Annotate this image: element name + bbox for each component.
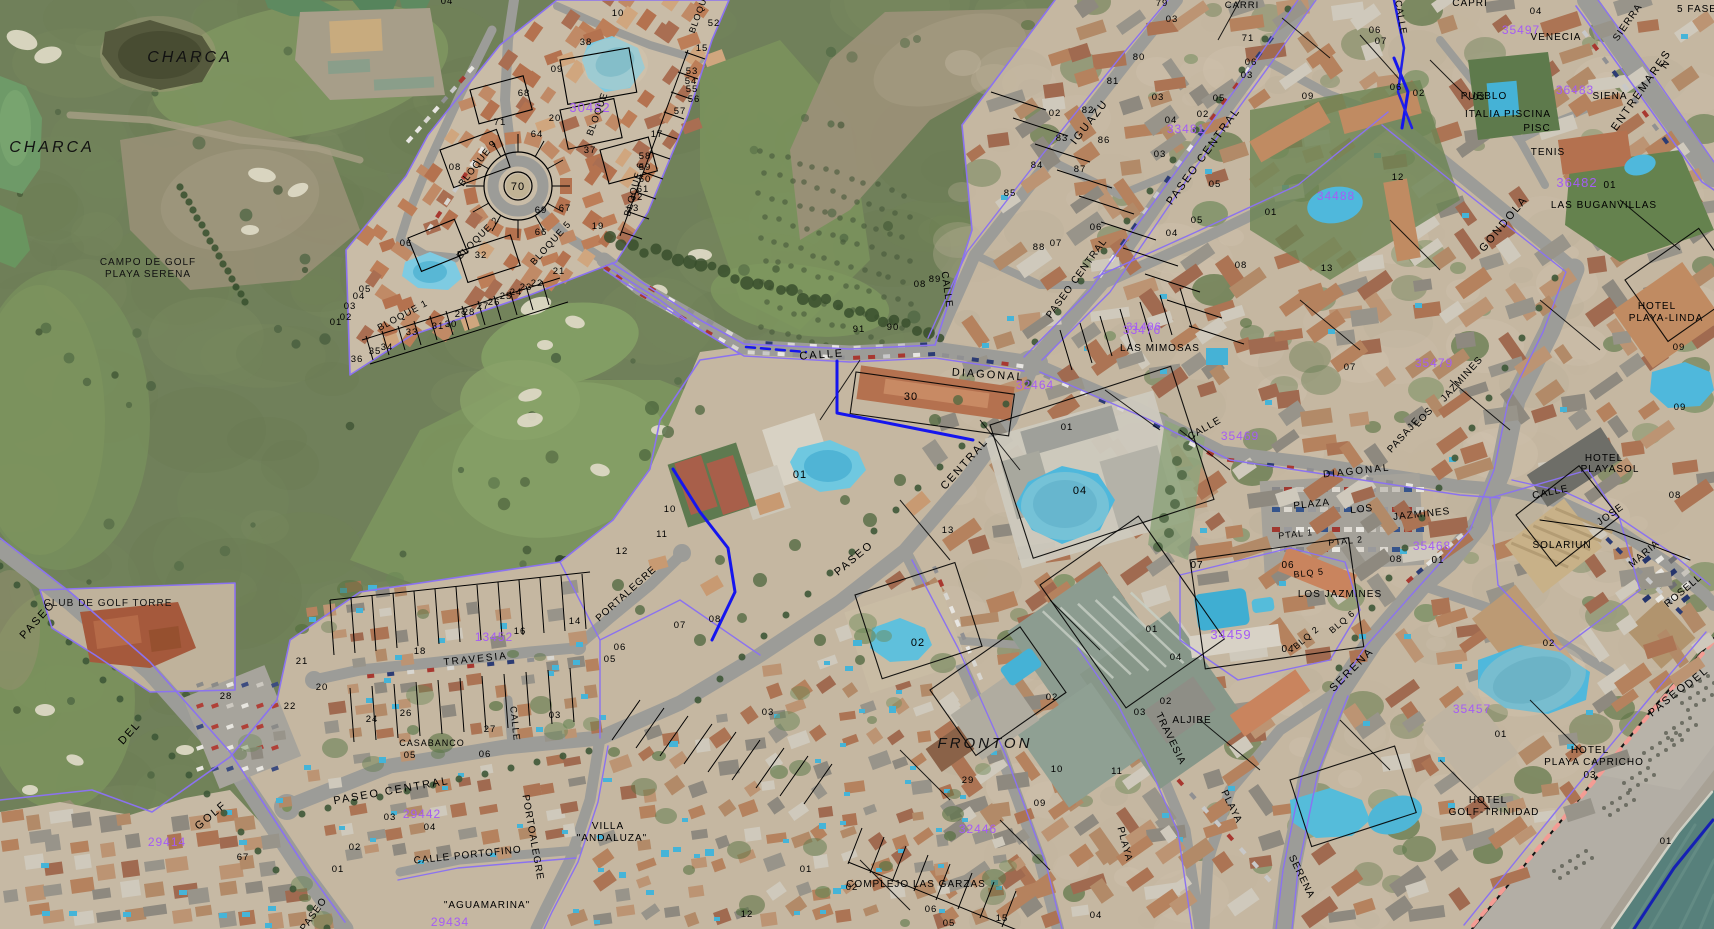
svg-text:GOLF-TRINIDAD: GOLF-TRINIDAD (1449, 807, 1540, 818)
svg-text:03: 03 (762, 707, 775, 718)
svg-text:04: 04 (441, 0, 454, 7)
svg-text:28: 28 (463, 307, 476, 318)
svg-text:68: 68 (518, 88, 531, 99)
svg-text:88: 88 (1033, 242, 1046, 253)
svg-text:06: 06 (1090, 222, 1103, 233)
svg-text:05: 05 (404, 750, 417, 761)
svg-text:01: 01 (1495, 729, 1508, 740)
svg-text:21: 21 (553, 266, 566, 277)
svg-text:HOTEL: HOTEL (1638, 301, 1676, 312)
svg-text:36483: 36483 (1556, 83, 1594, 97)
svg-text:31406: 31406 (1126, 321, 1162, 333)
svg-text:ALJIBE: ALJIBE (1172, 715, 1211, 726)
svg-text:15: 15 (996, 913, 1009, 924)
svg-text:14: 14 (569, 616, 582, 627)
svg-text:18: 18 (414, 646, 427, 657)
svg-text:17: 17 (651, 129, 664, 140)
svg-text:30: 30 (904, 391, 918, 403)
svg-text:"ANDALUZA": "ANDALUZA" (577, 833, 647, 844)
svg-text:10: 10 (612, 8, 625, 19)
svg-text:05: 05 (1209, 179, 1222, 190)
svg-text:10: 10 (664, 504, 677, 515)
svg-text:06: 06 (1245, 57, 1258, 68)
svg-text:CAPRI: CAPRI (1452, 0, 1488, 9)
svg-text:79: 79 (1156, 0, 1169, 9)
svg-text:02: 02 (1543, 638, 1556, 649)
svg-text:04: 04 (1166, 228, 1179, 239)
svg-text:LAS BUGANVILLAS: LAS BUGANVILLAS (1551, 200, 1657, 211)
svg-text:35479: 35479 (1415, 356, 1453, 370)
svg-text:08: 08 (1390, 554, 1403, 565)
svg-text:5 FASE: 5 FASE (1677, 4, 1714, 15)
svg-text:09: 09 (551, 64, 564, 75)
svg-text:81: 81 (1107, 76, 1120, 87)
svg-text:13: 13 (1321, 263, 1334, 274)
svg-text:21: 21 (296, 656, 309, 667)
svg-text:22: 22 (284, 701, 297, 712)
svg-text:05: 05 (943, 918, 956, 929)
svg-text:01: 01 (1660, 836, 1673, 847)
svg-text:89: 89 (929, 274, 942, 285)
svg-text:29442: 29442 (403, 807, 441, 821)
svg-text:03: 03 (344, 301, 357, 312)
svg-text:07: 07 (1190, 560, 1203, 571)
svg-text:06: 06 (400, 238, 413, 249)
svg-text:HOTEL: HOTEL (1585, 453, 1623, 464)
svg-text:02: 02 (349, 842, 362, 853)
svg-text:03: 03 (549, 710, 562, 721)
svg-text:"AGUAMARINA": "AGUAMARINA" (444, 900, 530, 911)
svg-text:15: 15 (696, 43, 709, 54)
svg-text:67: 67 (559, 203, 572, 214)
svg-text:07: 07 (1050, 238, 1063, 249)
svg-text:06: 06 (479, 749, 492, 760)
svg-text:35468: 35468 (1413, 539, 1451, 553)
svg-text:07: 07 (1344, 362, 1357, 373)
svg-text:34459: 34459 (1210, 627, 1251, 642)
svg-text:85: 85 (1004, 188, 1017, 199)
svg-text:11: 11 (1111, 766, 1123, 777)
svg-text:04: 04 (1090, 910, 1103, 921)
svg-text:02: 02 (1413, 88, 1426, 99)
svg-text:11: 11 (656, 529, 668, 540)
svg-text:09: 09 (1674, 402, 1687, 413)
svg-text:83: 83 (1056, 133, 1069, 144)
svg-text:56: 56 (688, 94, 701, 105)
svg-text:33: 33 (406, 327, 419, 338)
svg-text:08: 08 (1669, 490, 1682, 501)
svg-text:03: 03 (1166, 14, 1179, 25)
svg-text:31: 31 (432, 321, 445, 332)
svg-text:30: 30 (445, 319, 458, 330)
svg-text:35457: 35457 (1453, 702, 1491, 716)
svg-text:32464: 32464 (1016, 378, 1054, 392)
svg-text:05: 05 (604, 654, 617, 665)
svg-text:29414: 29414 (148, 835, 186, 849)
svg-text:03: 03 (1583, 770, 1596, 781)
svg-text:06: 06 (1369, 25, 1382, 36)
svg-text:PLAYA CAPRICHO: PLAYA CAPRICHO (1544, 757, 1644, 768)
svg-text:32: 32 (475, 250, 488, 261)
svg-text:91: 91 (853, 324, 866, 335)
svg-text:86: 86 (1098, 135, 1111, 146)
svg-text:04: 04 (424, 822, 437, 833)
svg-text:HOTEL: HOTEL (1571, 745, 1609, 756)
svg-text:19: 19 (592, 221, 605, 232)
svg-text:04: 04 (1170, 652, 1183, 663)
svg-text:16: 16 (514, 626, 527, 637)
svg-text:VILLA: VILLA (592, 821, 624, 832)
svg-text:90: 90 (887, 322, 900, 333)
svg-text:CHARCA: CHARCA (9, 139, 95, 156)
svg-text:01: 01 (1603, 180, 1616, 191)
svg-text:08: 08 (914, 279, 927, 290)
svg-text:02: 02 (1046, 692, 1059, 703)
svg-text:82: 82 (1082, 105, 1095, 116)
svg-text:35: 35 (369, 346, 382, 357)
svg-text:FRONTON: FRONTON (938, 735, 1033, 752)
svg-text:13452: 13452 (475, 630, 513, 644)
svg-text:07: 07 (674, 620, 687, 631)
svg-text:57: 57 (674, 106, 687, 117)
svg-text:01: 01 (332, 864, 345, 875)
svg-text:10: 10 (1051, 764, 1064, 775)
svg-text:06: 06 (614, 642, 627, 653)
svg-text:05: 05 (1191, 215, 1204, 226)
svg-text:26: 26 (488, 297, 501, 308)
svg-text:04: 04 (1530, 6, 1543, 17)
svg-text:06: 06 (925, 904, 938, 915)
svg-text:71: 71 (1242, 33, 1255, 44)
svg-text:38: 38 (580, 37, 593, 48)
svg-text:02: 02 (911, 637, 925, 649)
svg-text:ITALIA PISCINA: ITALIA PISCINA (1465, 109, 1551, 120)
svg-text:CASABANCO: CASABANCO (399, 738, 465, 748)
svg-text:35469: 35469 (1221, 429, 1259, 443)
svg-text:66: 66 (535, 227, 548, 238)
svg-text:12: 12 (741, 909, 754, 920)
svg-text:12: 12 (616, 546, 629, 557)
svg-text:PISC: PISC (1523, 123, 1550, 134)
svg-text:67: 67 (237, 852, 250, 863)
svg-text:09: 09 (1673, 342, 1686, 353)
svg-text:CAMPO DE GOLF: CAMPO DE GOLF (100, 257, 196, 268)
svg-text:13: 13 (942, 525, 955, 536)
svg-text:HOTEL: HOTEL (1469, 795, 1507, 806)
svg-text:24: 24 (366, 714, 379, 725)
svg-text:CHARCA: CHARCA (147, 49, 233, 66)
svg-text:03: 03 (1134, 707, 1147, 718)
svg-text:27: 27 (484, 724, 497, 735)
svg-text:36482: 36482 (1556, 175, 1597, 190)
svg-text:PLAYASOL: PLAYASOL (1581, 464, 1640, 475)
svg-text:09: 09 (1302, 91, 1315, 102)
svg-text:01: 01 (1431, 555, 1444, 566)
svg-text:03: 03 (1241, 70, 1254, 81)
svg-text:01: 01 (1146, 624, 1159, 635)
svg-text:20: 20 (549, 113, 562, 124)
svg-text:COMPLEJO LAS GARZAS: COMPLEJO LAS GARZAS (846, 879, 986, 890)
svg-text:34: 34 (381, 342, 394, 353)
svg-text:LOS JAZMINES: LOS JAZMINES (1298, 589, 1382, 600)
svg-text:29: 29 (962, 775, 975, 786)
svg-text:06: 06 (1390, 82, 1403, 93)
svg-text:71: 71 (494, 117, 507, 128)
svg-text:03: 03 (1154, 149, 1167, 160)
svg-text:04: 04 (1073, 485, 1087, 497)
svg-text:02: 02 (846, 882, 859, 893)
svg-text:87: 87 (1074, 164, 1087, 175)
svg-text:12: 12 (1392, 172, 1405, 183)
svg-text:09: 09 (1034, 798, 1047, 809)
svg-text:TENIS: TENIS (1531, 147, 1565, 158)
svg-text:06: 06 (1281, 560, 1294, 571)
svg-text:02: 02 (1049, 108, 1062, 119)
svg-text:07: 07 (1375, 36, 1388, 47)
svg-text:01: 01 (1061, 422, 1074, 433)
svg-text:26: 26 (400, 708, 413, 719)
svg-text:03: 03 (1152, 92, 1165, 103)
svg-text:70: 70 (511, 181, 525, 193)
svg-text:84: 84 (1031, 160, 1044, 171)
svg-text:28: 28 (220, 691, 233, 702)
svg-text:05: 05 (1213, 93, 1226, 104)
svg-text:03: 03 (1473, 92, 1486, 103)
svg-text:01: 01 (800, 864, 813, 875)
svg-text:64: 64 (531, 129, 544, 140)
svg-text:02: 02 (1197, 109, 1210, 120)
svg-text:PLAYA-LINDA: PLAYA-LINDA (1629, 313, 1704, 324)
svg-text:01: 01 (793, 469, 807, 481)
svg-text:02: 02 (1160, 696, 1173, 707)
svg-text:04: 04 (1165, 115, 1178, 126)
svg-text:01: 01 (330, 317, 343, 328)
svg-text:52: 52 (708, 18, 721, 29)
svg-text:80: 80 (1133, 52, 1146, 63)
svg-text:32446: 32446 (959, 822, 997, 836)
svg-text:03: 03 (384, 812, 397, 823)
svg-text:08: 08 (1235, 260, 1248, 271)
svg-text:34488: 34488 (1317, 189, 1355, 203)
svg-text:PLAYA SERENA: PLAYA SERENA (105, 269, 191, 280)
svg-text:37: 37 (584, 145, 597, 156)
svg-text:SIENA: SIENA (1592, 91, 1627, 102)
svg-text:35497: 35497 (1502, 23, 1540, 37)
svg-text:20: 20 (316, 682, 329, 693)
svg-text:58: 58 (639, 151, 652, 162)
svg-text:36: 36 (351, 354, 364, 365)
svg-text:69: 69 (535, 205, 548, 216)
svg-text:LAS MIMOSAS: LAS MIMOSAS (1120, 343, 1200, 354)
svg-text:CLUB DE GOLF TORRE: CLUB DE GOLF TORRE (44, 598, 173, 609)
svg-text:CARRI: CARRI (1225, 0, 1260, 11)
svg-text:SOLARIUN: SOLARIUN (1532, 540, 1591, 551)
svg-text:08: 08 (709, 614, 722, 625)
svg-text:01: 01 (1265, 207, 1278, 218)
svg-text:22: 22 (531, 278, 544, 289)
svg-text:08: 08 (449, 162, 462, 173)
svg-text:29434: 29434 (431, 915, 469, 929)
